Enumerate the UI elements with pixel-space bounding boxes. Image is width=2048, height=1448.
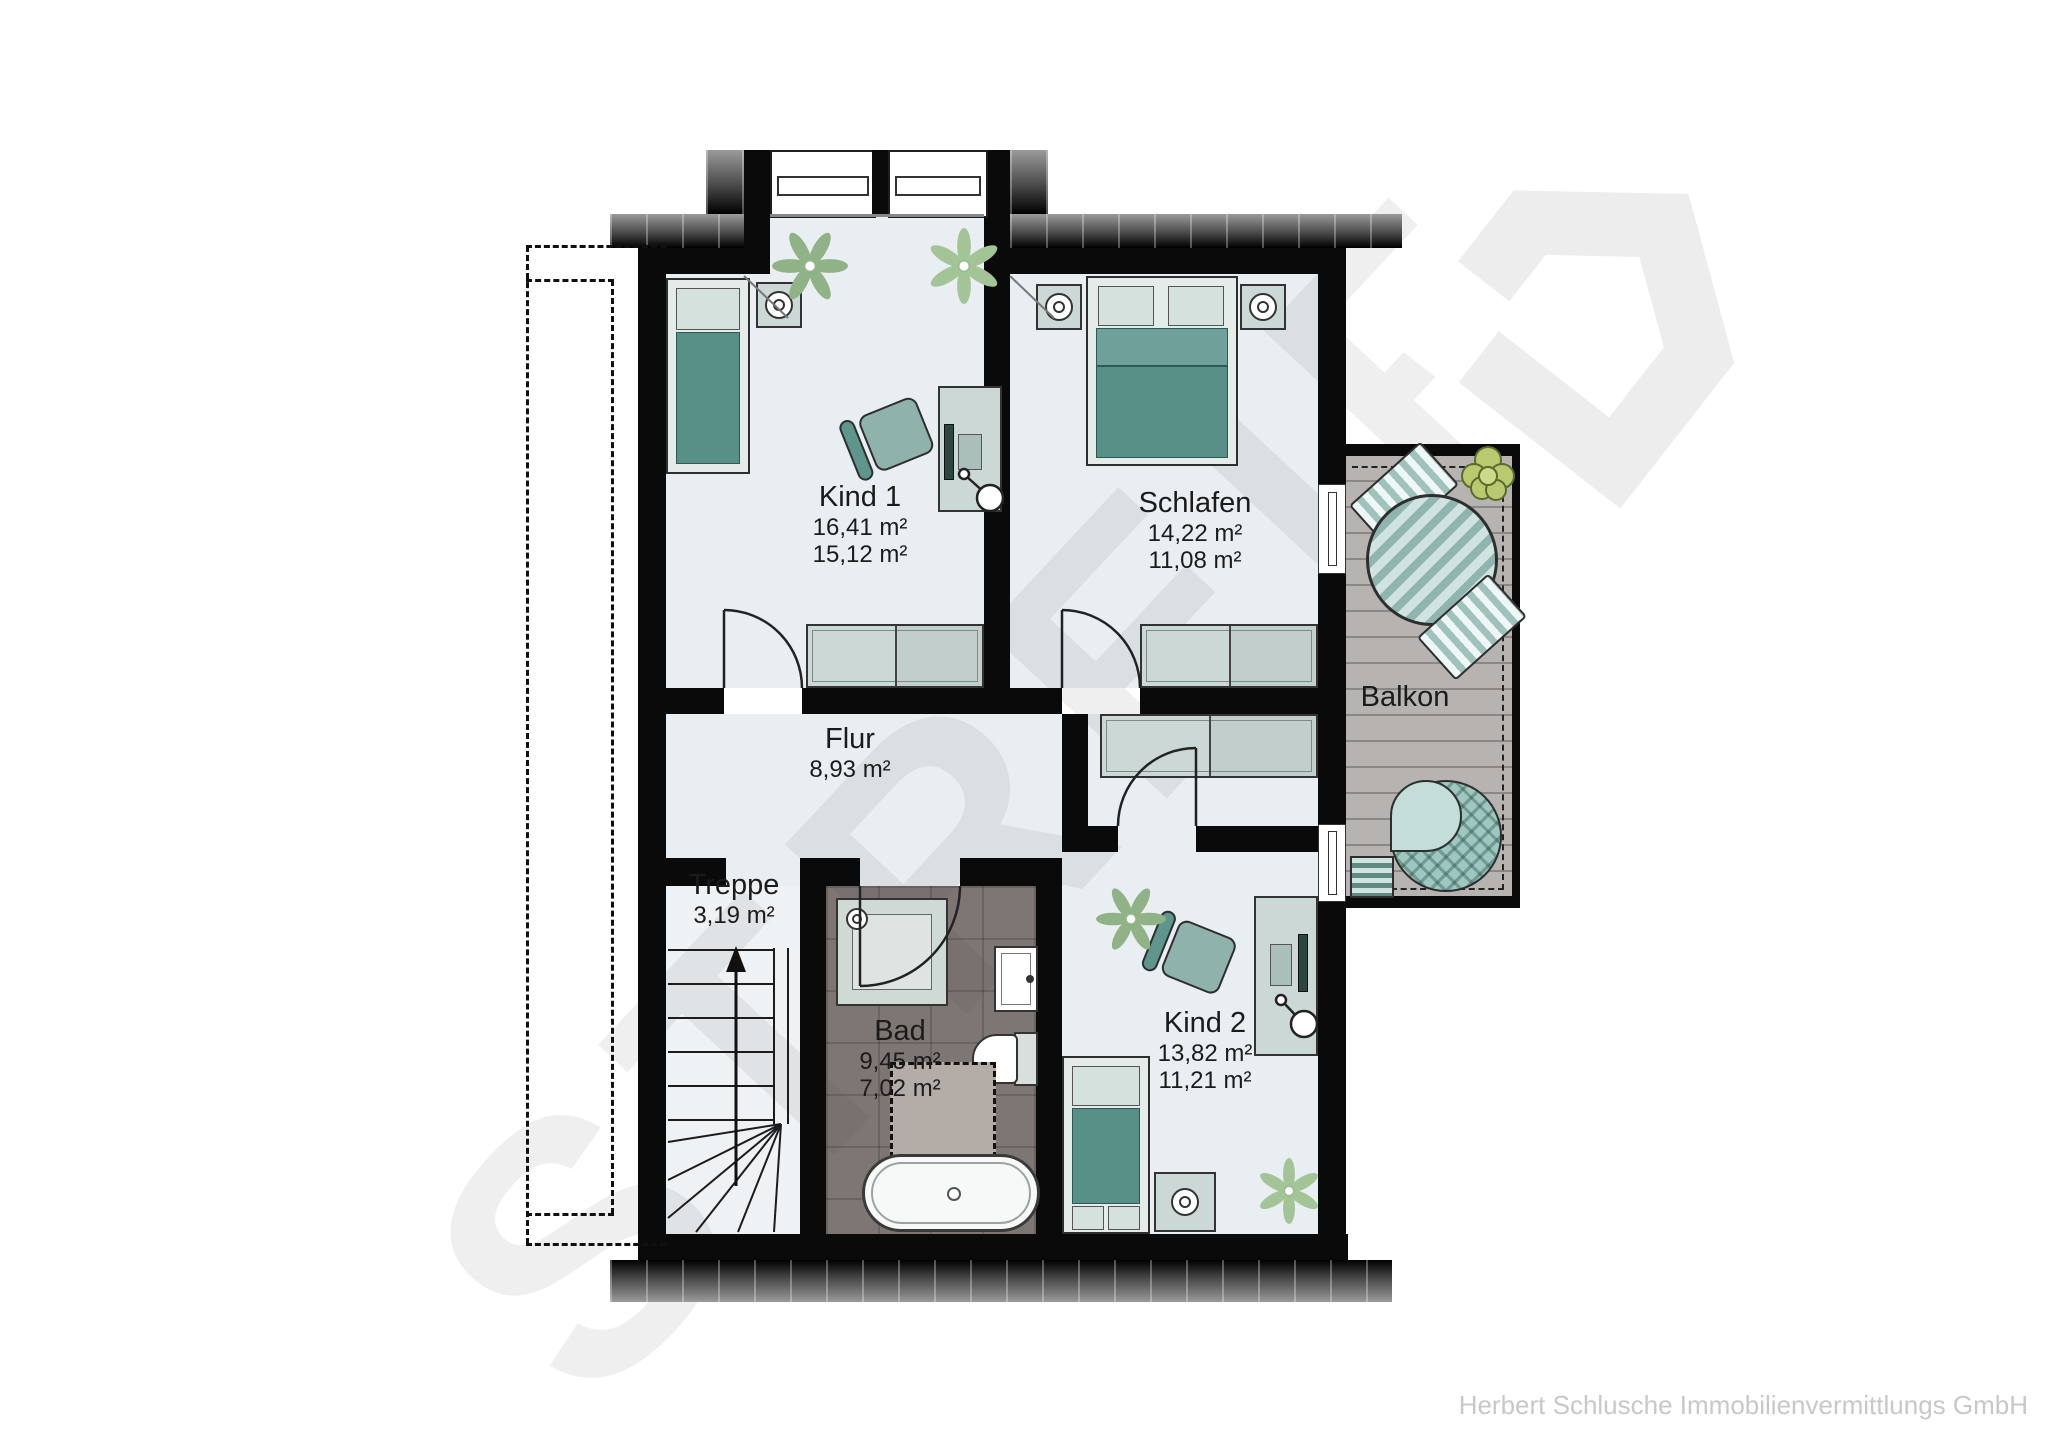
blanket (1072, 1108, 1140, 1204)
balcony-doormat (1350, 856, 1394, 898)
room-area-total: 8,93 m² (770, 756, 930, 783)
room-label-schlafen: Schlafen 14,22 m² 11,08 m² (1100, 486, 1290, 574)
balcony-hanging-chair (1390, 780, 1502, 892)
wall-flur-north-b (802, 688, 1010, 714)
balcony-door-kind2 (1318, 824, 1346, 902)
bathtub-drain (947, 1187, 961, 1201)
room-floor-treppe (666, 886, 800, 1234)
roof-hatch-top-right (1010, 214, 1402, 248)
bathroom-sink (994, 946, 1038, 1012)
room-area-living: 11,08 m² (1100, 547, 1290, 574)
wall-bad-kind2 (1036, 886, 1062, 1234)
pillow-left (1098, 286, 1154, 326)
roof-line-inner-vertical (611, 280, 614, 1214)
monitor-kind2 (1298, 934, 1308, 992)
lamp-kind1 (765, 291, 793, 319)
blanket (1096, 366, 1228, 458)
floor-plan-page: STREIF Balkon (0, 0, 2048, 1448)
shower-drain (846, 908, 868, 930)
room-area-living: 15,12 m² (770, 541, 950, 568)
room-label-balkon: Balkon (1335, 680, 1475, 714)
room-area-total: 9,45 m² (820, 1048, 980, 1075)
room-area-total: 3,19 m² (664, 902, 804, 929)
pillow-right (1168, 286, 1224, 326)
room-name: Schlafen (1100, 486, 1290, 520)
roof-hatch-top-left (610, 214, 744, 248)
wall-left (638, 248, 666, 1260)
room-area-living: 7,02 m² (820, 1075, 980, 1102)
wall-flur-north-d (1140, 688, 1318, 714)
wall-right-a (1318, 248, 1346, 484)
wall-flur-north-c (1010, 688, 1062, 714)
balcony-door-schlafen (1318, 484, 1346, 574)
room-area-total: 13,82 m² (1110, 1040, 1300, 1067)
room-name: Balkon (1335, 680, 1475, 714)
keyboard-kind1 (958, 434, 982, 470)
dormer-window-left (770, 150, 876, 218)
double-bed-schlafen (1086, 276, 1238, 466)
room-label-flur: Flur 8,93 m² (770, 722, 930, 783)
blanket (676, 332, 740, 464)
bed-kind1 (666, 278, 750, 474)
room-area-living: 11,21 m² (1110, 1067, 1300, 1094)
room-name: Treppe (664, 868, 804, 902)
closet-niche (1100, 714, 1318, 778)
door-glazing (1328, 831, 1337, 895)
window-mullion (872, 150, 888, 214)
foot-shelf-left (1072, 1206, 1104, 1230)
window-sash (777, 176, 869, 195)
wall-kind2-north-a (1062, 826, 1118, 852)
roof-line-top-inner (526, 279, 614, 282)
roof-hatch-dormer-left (706, 150, 744, 214)
foot-shelf-right (1108, 1206, 1140, 1230)
room-label-bad: Bad 9,45 m² 7,02 m² (820, 1014, 980, 1102)
room-name: Kind 2 (1110, 1006, 1300, 1040)
wall-dormer-left (744, 150, 770, 274)
wall-top-left (638, 248, 744, 274)
wall-niche-stub (1062, 714, 1088, 826)
roof-line-top-outer (526, 245, 666, 248)
wall-flur-south-b (800, 858, 860, 886)
balcony-edge-top (1346, 444, 1520, 456)
room-area-total: 14,22 m² (1100, 520, 1290, 547)
door-glazing (1328, 492, 1337, 566)
lamp-kind2 (1171, 1188, 1199, 1216)
room-name: Flur (770, 722, 930, 756)
company-credit: Herbert Schlusche Immobilienvermittlungs… (1459, 1390, 2028, 1421)
room-name: Bad (820, 1014, 980, 1048)
keyboard-kind2 (1270, 944, 1292, 986)
closet-schlafen (1140, 624, 1318, 688)
wall-top-schlafen (1010, 248, 1346, 274)
lamp-schlafen-left (1045, 293, 1073, 321)
room-area-total: 16,41 m² (770, 514, 950, 541)
sink-faucet (1026, 975, 1034, 983)
window-sash (895, 176, 981, 195)
balcony-edge-right (1512, 444, 1520, 908)
roof-hatch-bottom (610, 1260, 1392, 1302)
room-label-kind1: Kind 1 16,41 m² 15,12 m² (770, 480, 950, 568)
roof-line-outer-vertical (526, 246, 529, 1244)
roof-line-bottom-outer (526, 1243, 666, 1246)
blanket-fold (1096, 328, 1228, 366)
wall-kind2-north-b (1196, 826, 1318, 852)
bathtub (862, 1154, 1040, 1232)
wall-flur-south-c (960, 858, 1062, 886)
window-sill-line (770, 214, 984, 217)
dormer-window-right (888, 150, 988, 218)
room-name: Kind 1 (770, 480, 950, 514)
wall-flur-north-a (666, 688, 724, 714)
hanging-chair-blanket (1390, 780, 1462, 852)
room-label-treppe: Treppe 3,19 m² (664, 868, 804, 929)
roof-line-bottom-inner (526, 1213, 614, 1216)
lamp-schlafen-right (1249, 293, 1277, 321)
roof-hatch-dormer-right (1010, 150, 1048, 214)
closet-kind1 (806, 624, 984, 688)
wall-bottom (638, 1234, 1348, 1260)
dormer-floor-kind1 (770, 214, 984, 274)
pillow (676, 288, 740, 330)
room-label-kind2: Kind 2 13,82 m² 11,21 m² (1110, 1006, 1300, 1094)
wall-right-c (1318, 900, 1346, 1234)
